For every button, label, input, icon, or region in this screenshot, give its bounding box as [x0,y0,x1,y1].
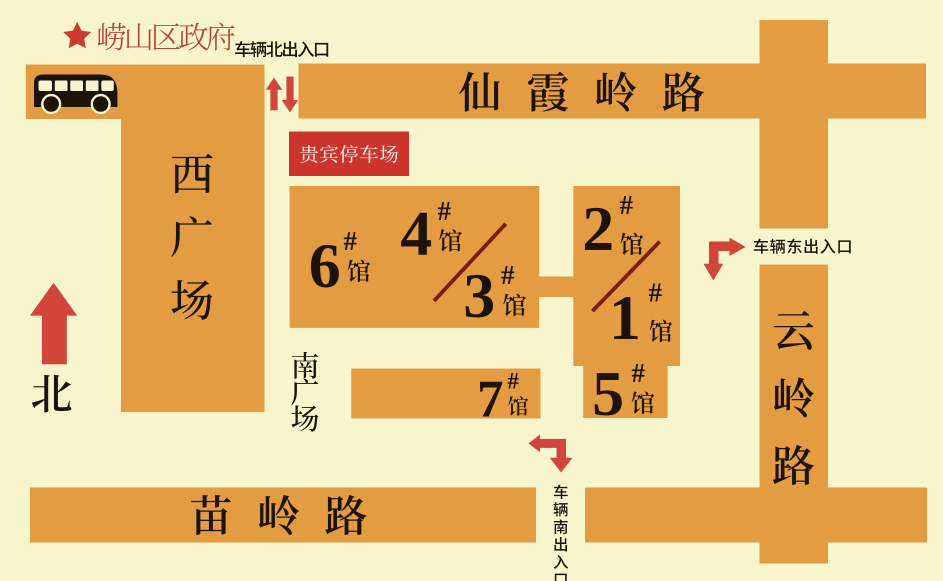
svg-text:4: 4 [400,198,432,269]
svg-text:6: 6 [309,230,341,301]
svg-text:#: # [344,226,358,256]
svg-text:#: # [501,260,515,290]
svg-text:3: 3 [463,260,495,331]
svg-text:7: 7 [477,371,504,429]
svg-text:#: # [631,358,645,388]
svg-text:1: 1 [609,282,641,353]
svg-text:5: 5 [592,358,624,429]
svg-text:2: 2 [582,193,614,264]
svg-text:#: # [648,278,662,308]
svg-text:#: # [507,368,519,393]
svg-text:#: # [619,190,633,220]
svg-text:#: # [437,196,451,226]
